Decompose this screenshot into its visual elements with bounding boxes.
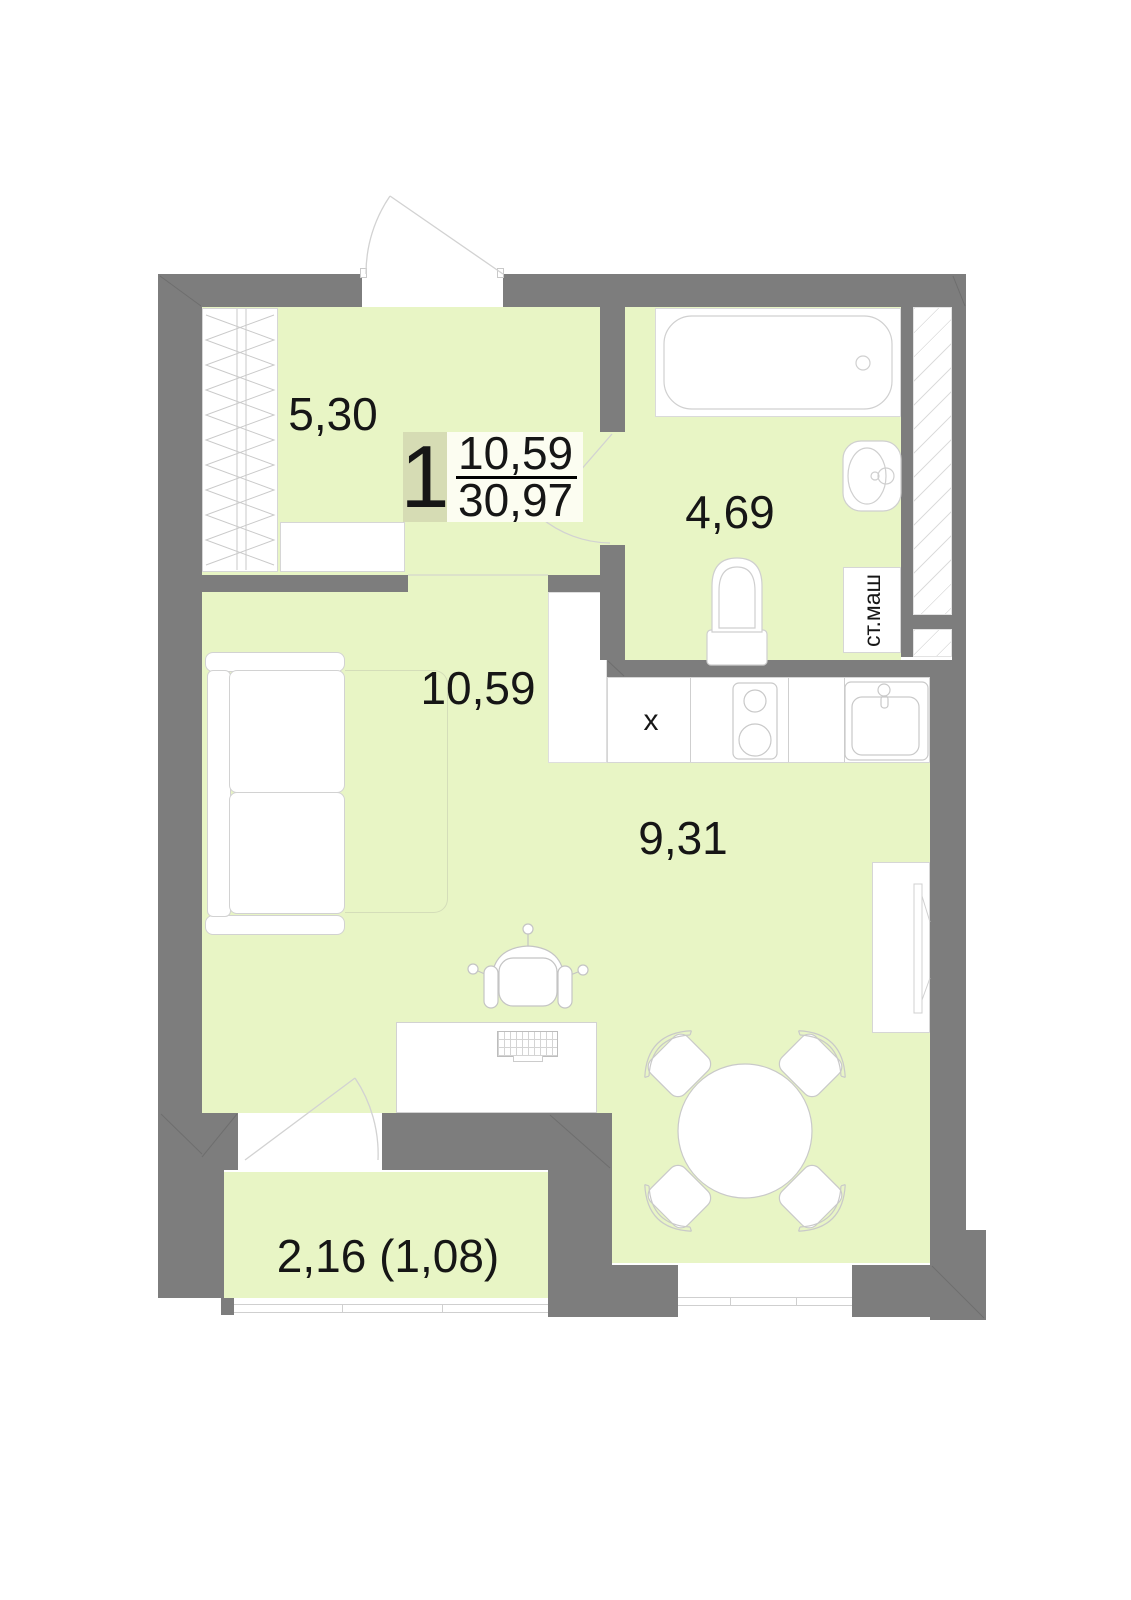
balcony-door-swing bbox=[245, 1078, 378, 1160]
stove bbox=[733, 683, 777, 759]
label-bathroom-area: 4,69 bbox=[685, 485, 775, 539]
wardrobe-hanger-zigzag bbox=[206, 309, 274, 570]
washing-machine-label: ст.маш bbox=[859, 574, 886, 647]
label-balcony-area: 2,16 (1,08) bbox=[277, 1229, 499, 1283]
toilet bbox=[707, 558, 767, 665]
bathtub-basin bbox=[664, 316, 892, 409]
counter-mark: x bbox=[644, 704, 659, 738]
bathroom-sink bbox=[843, 441, 901, 511]
dining-table bbox=[678, 1064, 812, 1198]
washing-machine-label-wrap: ст.маш bbox=[843, 567, 901, 653]
entrance-door-swing bbox=[366, 196, 503, 274]
unit-badge-rooms-count: 1 bbox=[403, 432, 447, 522]
unit-badge-living-area: 10,59 bbox=[456, 432, 577, 479]
office-chair bbox=[468, 924, 588, 1008]
unit-badge-total-area: 30,97 bbox=[456, 479, 573, 522]
label-hallway-area: 5,30 bbox=[288, 387, 378, 441]
floor-plan: 5,30 4,69 10,59 9,31 2,16 (1,08) x 1 10,… bbox=[0, 0, 1131, 1600]
unit-badge-areas: 10,59 30,97 bbox=[447, 432, 583, 522]
plan-detail-layer bbox=[0, 0, 1131, 1600]
label-kitchen-area: 9,31 bbox=[638, 811, 728, 865]
dining-set bbox=[634, 1020, 856, 1242]
kitchen-sink bbox=[845, 682, 928, 760]
wardrobe-right-detail bbox=[914, 884, 930, 1013]
label-living-area: 10,59 bbox=[420, 661, 535, 715]
